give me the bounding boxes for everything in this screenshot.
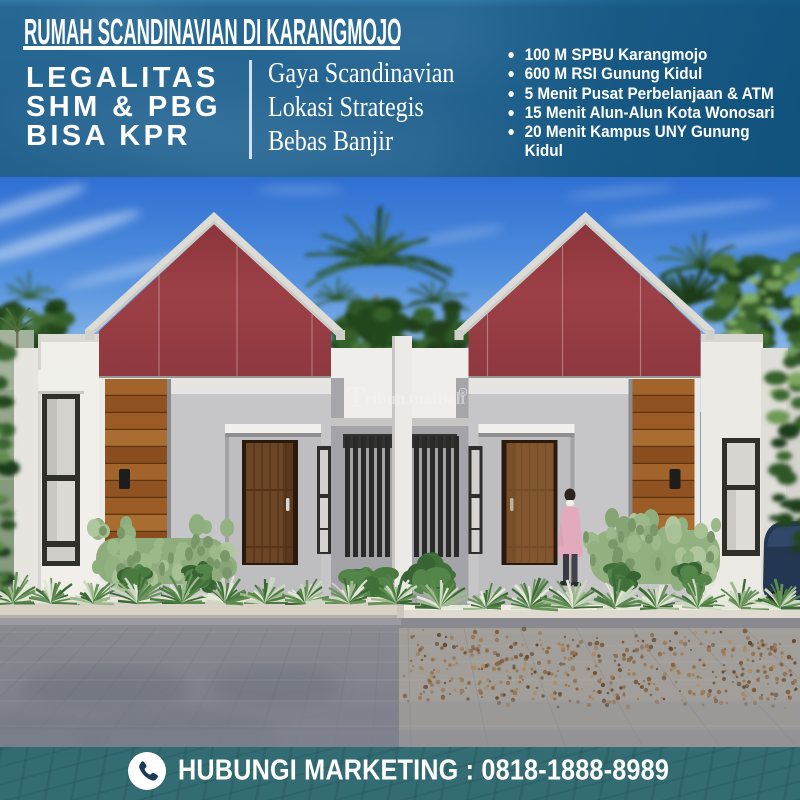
svg-text:R: R bbox=[461, 390, 465, 396]
svg-text:T: T bbox=[346, 381, 366, 414]
svg-text:ribunJualBeli: ribunJualBeli bbox=[365, 389, 465, 408]
